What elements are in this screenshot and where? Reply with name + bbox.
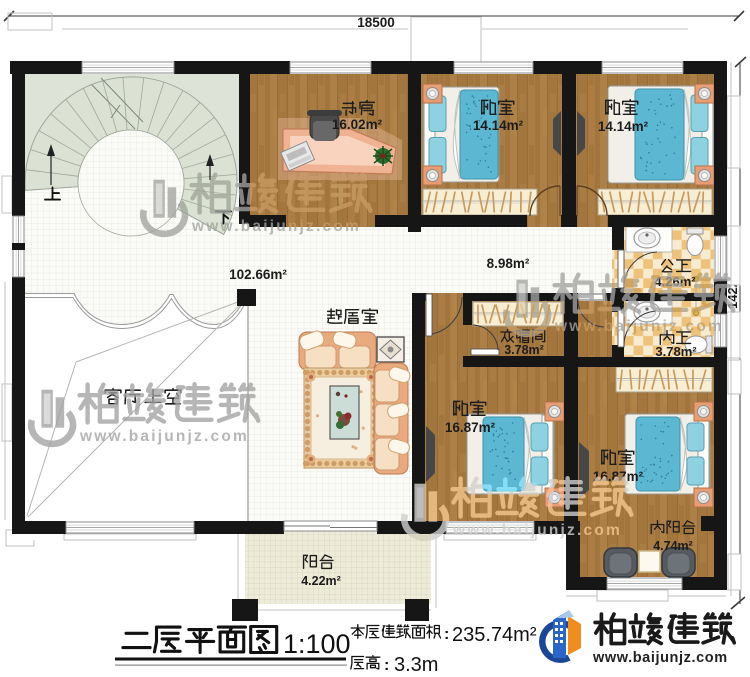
svg-text:3.78m²: 3.78m² (655, 344, 697, 359)
svg-text:14.14m²: 14.14m² (598, 119, 649, 134)
svg-text:3.78m²: 3.78m² (504, 343, 544, 357)
svg-text:www.baijunjz.com: www.baijunjz.com (554, 318, 724, 335)
svg-text:www.baijunjz.com: www.baijunjz.com (452, 522, 622, 539)
svg-text:16.87m²: 16.87m² (445, 420, 496, 435)
svg-text::: : (384, 657, 389, 674)
svg-text:8.98m²: 8.98m² (487, 256, 530, 271)
svg-text:www.baijunjz.com: www.baijunjz.com (79, 428, 249, 445)
svg-text:102.66m²: 102.66m² (229, 267, 287, 282)
svg-text:18500: 18500 (357, 15, 395, 30)
svg-text:4.74m²: 4.74m² (653, 539, 693, 553)
svg-text:16.02m²: 16.02m² (332, 117, 383, 132)
svg-text:4.22m²: 4.22m² (301, 574, 341, 588)
svg-text:235.74m²: 235.74m² (452, 624, 537, 646)
svg-text:www.baijunjz.com: www.baijunjz.com (191, 218, 361, 235)
svg-text::: : (444, 626, 449, 643)
svg-text:1:100: 1:100 (283, 629, 351, 659)
svg-text:www.baijunjz.com: www.baijunjz.com (592, 650, 728, 666)
svg-text:14.14m²: 14.14m² (473, 118, 524, 133)
svg-text:3.3m: 3.3m (394, 654, 438, 676)
